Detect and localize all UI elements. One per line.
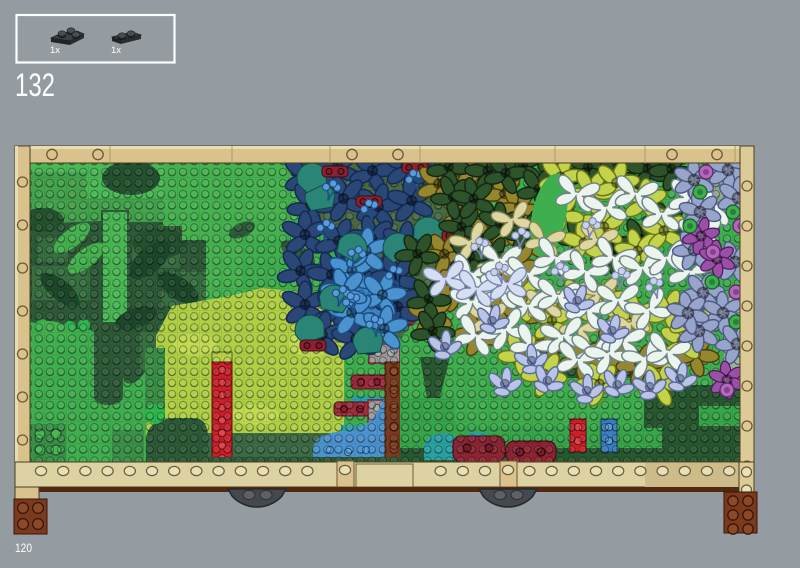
svg-text:132: 132: [15, 67, 55, 103]
svg-text:1x: 1x: [111, 45, 121, 56]
svg-text:1x: 1x: [50, 45, 60, 56]
svg-text:120: 120: [15, 541, 32, 555]
